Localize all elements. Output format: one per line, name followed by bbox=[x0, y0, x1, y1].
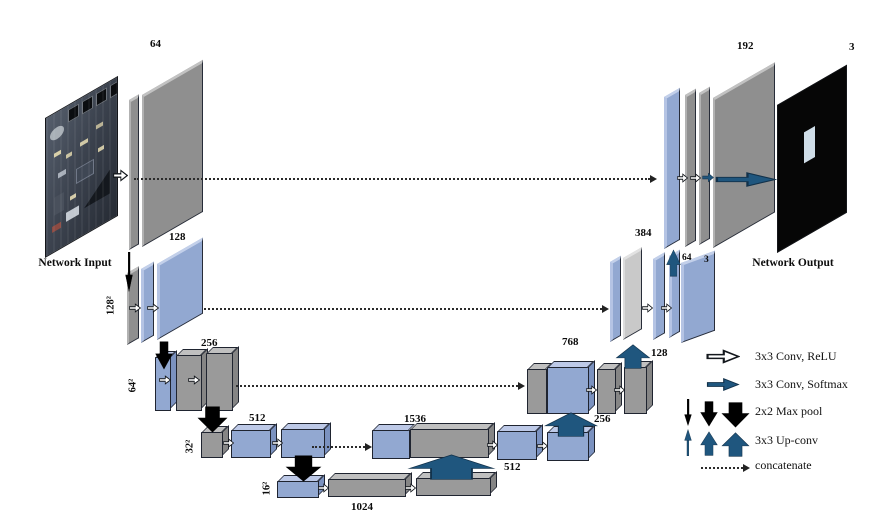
channels-label-1536: 1536 bbox=[404, 413, 426, 425]
conv-relu-arrow-icon bbox=[129, 303, 141, 313]
channels-label-3-out: 3 bbox=[849, 41, 855, 53]
conv-relu-arrow-icon bbox=[586, 385, 597, 395]
conv-softmax-arrow-icon bbox=[714, 171, 778, 188]
max-pool-arrow-icon bbox=[285, 455, 322, 482]
network-input-image bbox=[45, 76, 118, 258]
resolution-label-64: 64² bbox=[128, 370, 139, 402]
network-input-label: Network Input bbox=[25, 256, 125, 270]
conv64-panel-1 bbox=[129, 94, 139, 250]
conv64-panel-2 bbox=[142, 60, 203, 247]
channels-label-128: 128 bbox=[169, 231, 186, 243]
conv-relu-arrow-icon bbox=[223, 438, 234, 448]
concat384-panel-blue bbox=[610, 256, 621, 342]
channels-label-256: 256 bbox=[201, 337, 218, 349]
dec192-panel-2 bbox=[699, 87, 710, 245]
conv512-box-3 bbox=[281, 429, 325, 458]
concatenate-arrow-row1 bbox=[134, 178, 650, 180]
legend-concatenate-line bbox=[701, 467, 743, 469]
conv1024-box-2 bbox=[328, 479, 406, 497]
channels-label-128-up: 128 bbox=[651, 347, 668, 359]
dec128-panel-1 bbox=[653, 252, 665, 340]
dec3-panel bbox=[681, 251, 715, 343]
max-pool-arrow-icon bbox=[197, 406, 228, 433]
network-output-image bbox=[777, 65, 847, 253]
conv512-box-2 bbox=[231, 430, 271, 458]
concatenate-arrow-row3 bbox=[236, 385, 518, 387]
resolution-label-128: 128² bbox=[106, 290, 117, 322]
conv-relu-arrow-icon bbox=[661, 303, 672, 313]
conv1024-box-3 bbox=[416, 478, 491, 496]
channels-label-512-dec: 512 bbox=[504, 461, 521, 473]
legend-up-conv-big-icon bbox=[721, 432, 750, 457]
output-defect-region bbox=[804, 126, 815, 163]
conv-relu-arrow-icon bbox=[487, 440, 498, 450]
concat1536-box-blue bbox=[372, 430, 410, 459]
channels-label-1024: 1024 bbox=[351, 501, 373, 513]
legend-conv-relu-arrow-icon bbox=[706, 349, 740, 364]
conv-relu-arrow-icon bbox=[614, 385, 625, 395]
conv1024-box-1 bbox=[277, 481, 319, 498]
conv-relu-arrow-icon bbox=[147, 303, 159, 313]
conv-relu-arrow-icon bbox=[272, 438, 283, 448]
concatenate-arrow-row2 bbox=[204, 308, 602, 310]
legend-max-pool-med-icon bbox=[700, 401, 718, 427]
channels-label-384: 384 bbox=[635, 227, 652, 239]
dec256-box-2 bbox=[624, 367, 647, 414]
resolution-label-16: 16² bbox=[262, 473, 273, 505]
max-pool-arrow-icon bbox=[125, 252, 133, 292]
concat384-panel-gray bbox=[623, 247, 642, 340]
conv-relu-arrow-icon bbox=[690, 173, 701, 183]
legend-item-up-conv: 3x3 Up-conv bbox=[755, 433, 818, 448]
conv-softmax-arrow-icon bbox=[702, 172, 714, 183]
conv256-box-3 bbox=[206, 353, 233, 411]
legend-up-conv-med-icon bbox=[700, 431, 718, 456]
conv-relu-arrow-icon bbox=[113, 169, 128, 182]
channels-label-256-up: 256 bbox=[594, 413, 611, 425]
channels-label-64: 64 bbox=[150, 38, 161, 50]
concatenate-arrow-row4 bbox=[312, 446, 365, 448]
conv-relu-arrow-icon bbox=[188, 375, 200, 385]
conv-relu-arrow-icon bbox=[318, 483, 329, 493]
up-conv-arrow-icon bbox=[543, 412, 599, 437]
channels-label-3-dec: 3 bbox=[704, 255, 709, 265]
channels-label-192: 192 bbox=[737, 40, 754, 52]
up-conv-arrow-icon bbox=[615, 344, 651, 369]
legend-item-conv-relu: 3x3 Conv, ReLU bbox=[755, 349, 837, 364]
resolution-label-32: 32² bbox=[185, 431, 196, 463]
channels-label-512: 512 bbox=[249, 412, 266, 424]
dec512-box-1 bbox=[497, 431, 537, 460]
conv-relu-arrow-icon bbox=[537, 441, 548, 451]
unet-architecture-diagram: Network Input 64 128 128² 256 64² 512 32… bbox=[0, 0, 888, 529]
legend-item-max-pool: 2x2 Max pool bbox=[755, 404, 822, 419]
conv-relu-arrow-icon bbox=[405, 483, 416, 493]
conv128-panel-3 bbox=[157, 237, 203, 340]
conv512-box-1 bbox=[201, 432, 223, 458]
concat768-box-blue bbox=[547, 367, 589, 414]
legend-item-conv-softmax: 3x3 Conv, Softmax bbox=[755, 377, 848, 392]
max-pool-arrow-icon bbox=[155, 341, 173, 370]
dec192-panel-1 bbox=[685, 89, 696, 247]
legend-up-conv-thin-icon bbox=[684, 429, 692, 456]
dec192-panel-3 bbox=[713, 62, 775, 248]
channels-label-64-dec: 64 bbox=[682, 253, 692, 263]
conv-relu-arrow-icon bbox=[642, 303, 653, 313]
concat768-box-gray bbox=[527, 369, 547, 414]
channels-label-768: 768 bbox=[562, 336, 579, 348]
conv-relu-arrow-icon bbox=[159, 375, 171, 385]
legend-item-concatenate: concatenate bbox=[755, 458, 812, 473]
network-output-label: Network Output bbox=[743, 256, 843, 270]
concat192-panel-blue bbox=[664, 88, 680, 249]
legend-conv-softmax-arrow-icon bbox=[706, 377, 740, 392]
up-conv-arrow-icon bbox=[406, 454, 497, 480]
legend-max-pool-big-icon bbox=[721, 402, 750, 428]
legend-max-pool-thin-icon bbox=[684, 399, 692, 426]
up-conv-arrow-icon bbox=[666, 249, 681, 277]
conv-relu-arrow-icon bbox=[677, 173, 688, 183]
